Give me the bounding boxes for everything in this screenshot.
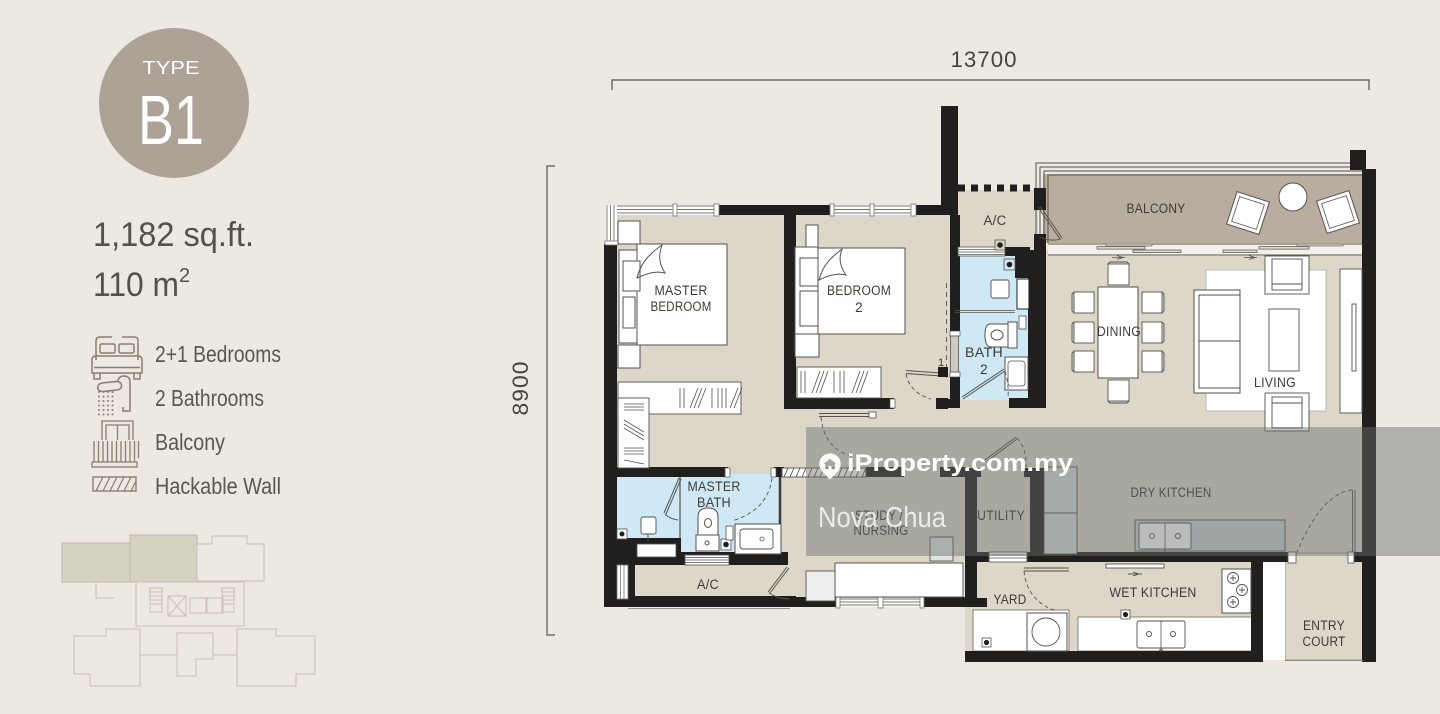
- svg-text:ENTRY: ENTRY: [1303, 618, 1345, 633]
- svg-text:Hackable Wall: Hackable Wall: [155, 473, 281, 499]
- svg-text:BEDROOM: BEDROOM: [827, 283, 891, 298]
- svg-text:B1: B1: [138, 81, 204, 159]
- svg-text:A/C: A/C: [697, 577, 719, 592]
- svg-text:iProperty.com.my: iProperty.com.my: [847, 450, 1074, 477]
- svg-text:A/C: A/C: [984, 213, 1007, 228]
- svg-text:2+1 Bedrooms: 2+1 Bedrooms: [155, 341, 281, 367]
- svg-text:LIVING: LIVING: [1254, 375, 1296, 390]
- svg-text:Balcony: Balcony: [155, 429, 225, 455]
- svg-text:DINING: DINING: [1097, 324, 1141, 339]
- svg-text:BALCONY: BALCONY: [1127, 201, 1186, 216]
- svg-text:13700: 13700: [951, 47, 1018, 72]
- svg-text:110 m2: 110 m2: [93, 265, 190, 304]
- svg-text:MASTER: MASTER: [655, 283, 708, 298]
- svg-text:COURT: COURT: [1303, 634, 1346, 649]
- svg-text:WET KITCHEN: WET KITCHEN: [1110, 585, 1197, 600]
- svg-text:BATH: BATH: [697, 495, 731, 510]
- svg-text:BEDROOM: BEDROOM: [651, 299, 712, 314]
- svg-text:Nova Chua: Nova Chua: [818, 502, 947, 534]
- svg-text:1,182 sq.ft.: 1,182 sq.ft.: [93, 216, 254, 254]
- svg-text:8900: 8900: [508, 361, 533, 416]
- svg-text:MASTER: MASTER: [688, 479, 741, 494]
- svg-text:2: 2: [855, 300, 863, 315]
- svg-text:2: 2: [980, 362, 988, 377]
- svg-text:YARD: YARD: [994, 592, 1027, 607]
- svg-text:TYPE: TYPE: [143, 58, 200, 78]
- svg-text:2 Bathrooms: 2 Bathrooms: [155, 385, 264, 411]
- svg-text:BATH: BATH: [965, 345, 1003, 360]
